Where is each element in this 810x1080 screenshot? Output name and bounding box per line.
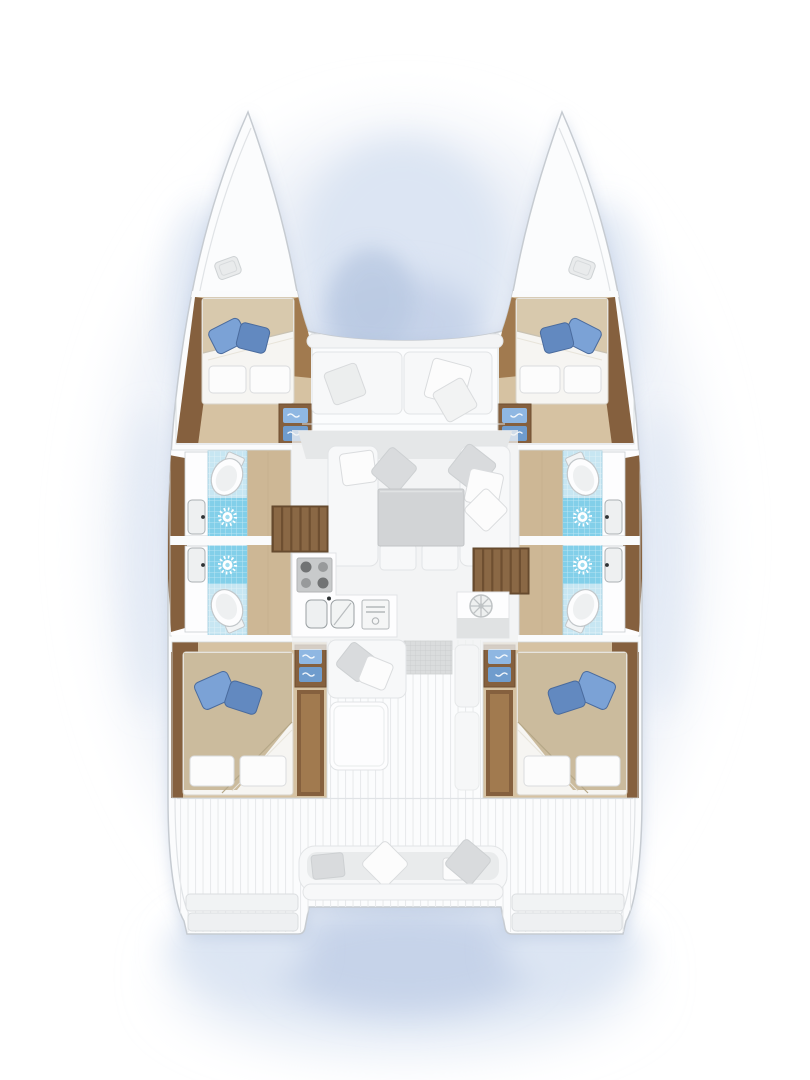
burner [318, 578, 329, 589]
step-tread [283, 408, 308, 423]
salon-table [378, 489, 464, 546]
partition-wall [178, 291, 312, 297]
burner [318, 562, 328, 572]
cockpit-locker [455, 645, 479, 707]
cabin-steps [295, 645, 326, 687]
swim-steps-starboard [512, 894, 624, 931]
throw-pillow [311, 852, 345, 879]
white-pillow [240, 756, 286, 786]
salon-sofa-seat [422, 544, 458, 570]
sink-counter [185, 452, 208, 536]
nav-counter [457, 618, 509, 638]
swim-step [512, 913, 622, 931]
swim-step [512, 894, 624, 911]
aft-cabin [171, 642, 327, 798]
companionway-stairs-port [272, 506, 328, 552]
salon-sofa-seat [380, 544, 416, 570]
double-bed [202, 298, 294, 404]
swim-steps-port [186, 894, 298, 931]
step-tread [299, 649, 322, 664]
burner [301, 562, 312, 573]
catamaran-floorplan [0, 0, 810, 1080]
cockpit-table [330, 702, 388, 770]
faucet-dot [327, 597, 331, 601]
oven-icon [362, 600, 389, 629]
transom-bench-lip [303, 884, 503, 900]
swim-step [186, 894, 298, 911]
transom-seating [299, 838, 507, 900]
white-pillow [190, 756, 234, 786]
floorplan-stage [0, 0, 810, 1080]
helm-wheel-icon [470, 595, 492, 617]
nav-station [457, 592, 509, 638]
companionway-stairs-starboard [473, 548, 529, 594]
forward-cabin [174, 291, 314, 450]
hull-side-panel [171, 652, 183, 798]
stove-icon [297, 558, 332, 592]
burner [301, 578, 311, 588]
faucet-dot [201, 563, 205, 567]
swim-step [188, 913, 298, 931]
white-pillow [209, 366, 246, 393]
throw-pillow [339, 450, 377, 486]
white-pillow [250, 366, 290, 393]
cockpit-locker [455, 712, 479, 790]
double-bed [183, 652, 293, 795]
sink-counter [185, 546, 208, 632]
step-tread [299, 667, 322, 682]
faucet-dot [201, 515, 205, 519]
